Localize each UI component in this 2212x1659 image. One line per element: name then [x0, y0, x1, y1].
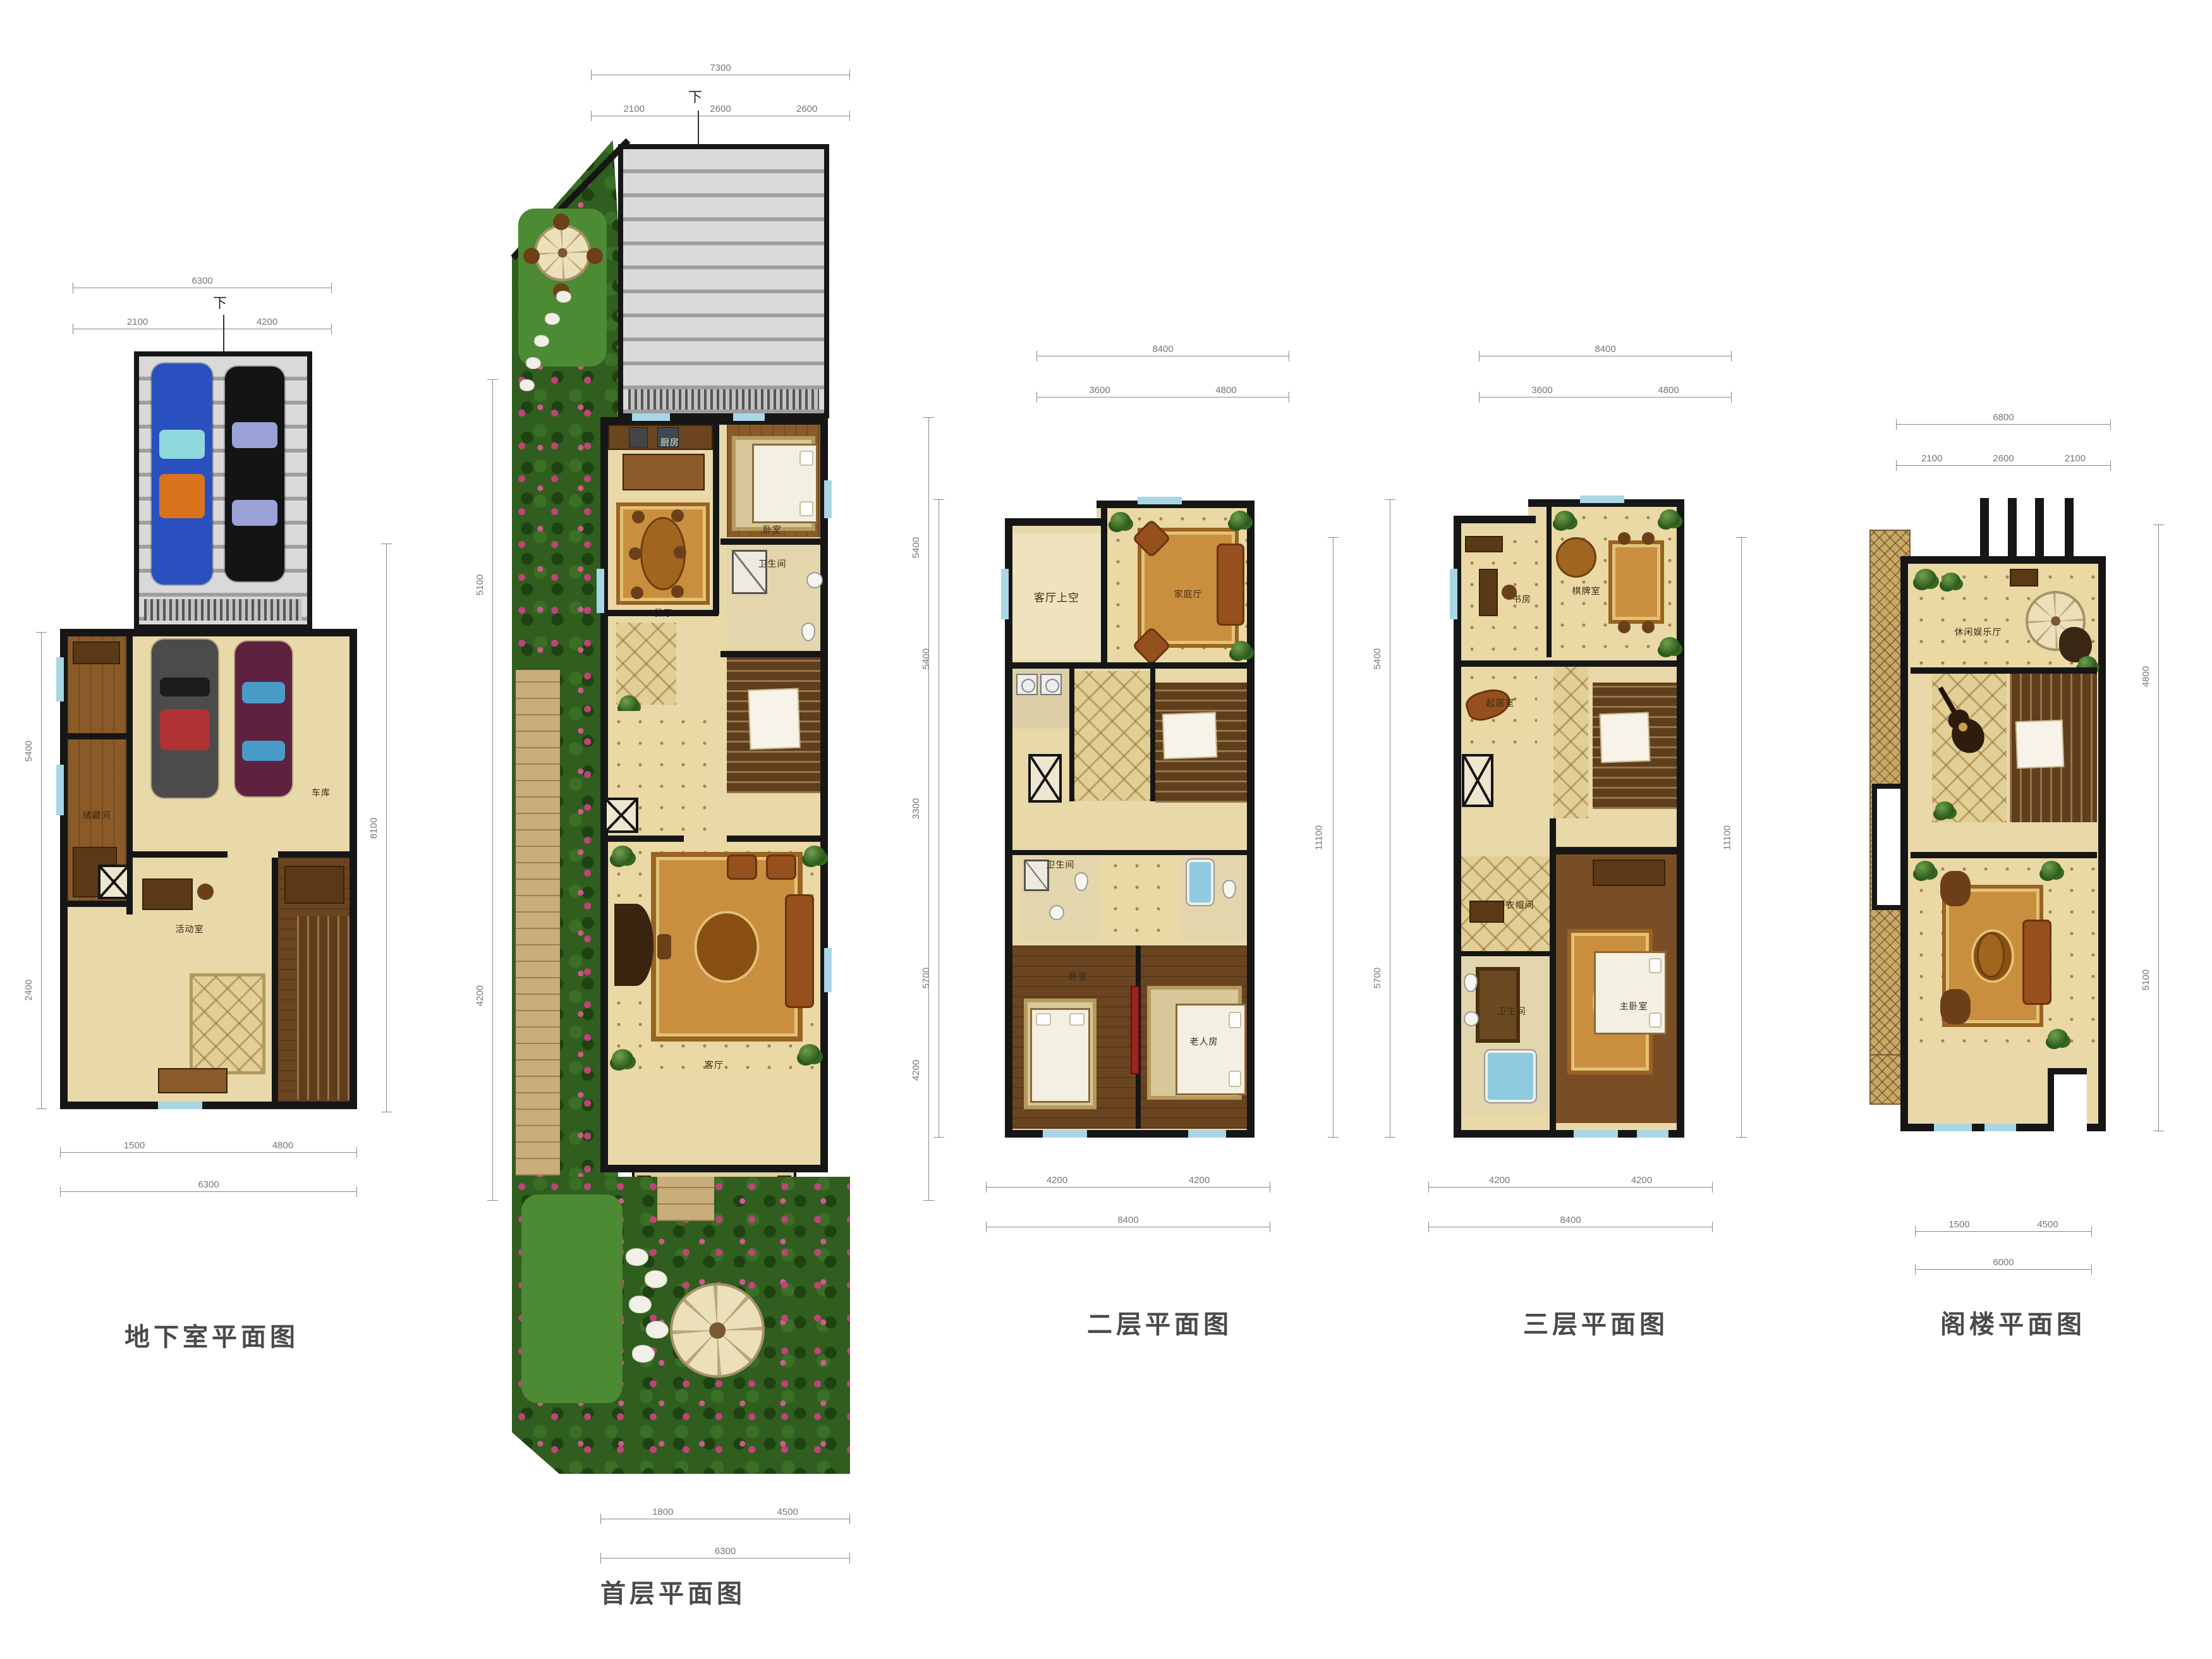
sink-icon: [1049, 905, 1064, 920]
dining-chair: [631, 586, 643, 599]
lobby: [1501, 749, 1548, 815]
storage-nook: [616, 623, 676, 705]
chair: [1618, 621, 1631, 633]
plant-icon: [612, 1049, 633, 1068]
sink-icon: [1464, 1011, 1479, 1026]
game-table-rug: [1608, 540, 1664, 624]
garden-chair: [586, 248, 603, 264]
window: [632, 413, 670, 421]
dining-chair: [629, 547, 641, 560]
elevator-icon: [1462, 754, 1493, 807]
dimension-numbers: 6300: [73, 276, 332, 286]
wardrobe: [1469, 901, 1504, 923]
wall: [1454, 516, 1536, 523]
stair-notch: [2048, 1068, 2087, 1131]
dimension-numbers: 42004200: [986, 1175, 1270, 1186]
partition-wall: [1012, 850, 1247, 855]
window: [1984, 1124, 2016, 1131]
dimension-line: [60, 1191, 357, 1192]
room-label: 休闲娱乐厅: [1955, 626, 2002, 638]
stove-icon: [629, 427, 648, 447]
dimension-line: [73, 329, 332, 329]
stepping-stone: [556, 291, 571, 303]
window: [1574, 1130, 1618, 1138]
stair-landing: [1600, 712, 1651, 763]
hall-runner: [1074, 671, 1150, 801]
plant-icon: [1660, 637, 1680, 655]
partition-wall: [1150, 669, 1155, 801]
plant-icon: [804, 846, 825, 865]
kitchen-island: [623, 454, 705, 490]
dimension-line: [1036, 356, 1289, 356]
stepping-stone: [629, 1296, 652, 1313]
gazebo-table-icon: [534, 224, 591, 281]
dimension-strip: 42004200: [986, 1172, 1270, 1188]
window: [733, 413, 765, 421]
wall: [1005, 518, 1104, 526]
partition-wall: [272, 858, 278, 1104]
stair-landing: [1162, 712, 1217, 760]
plant-icon: [1555, 511, 1575, 528]
garden-chair: [523, 248, 540, 264]
pillow: [1229, 1071, 1241, 1087]
bed-icon: [1030, 1008, 1090, 1103]
room-label: 书房: [1512, 593, 1531, 605]
dimension-strip: 54005700: [927, 499, 943, 1138]
down-arrow-label: 下: [688, 86, 702, 106]
shower-icon: [1024, 860, 1049, 891]
cabinet: [284, 866, 344, 904]
dimension-numbers: 48005100: [2136, 525, 2156, 1131]
dimension-numbers: 210026002600: [591, 104, 850, 114]
window: [824, 480, 832, 518]
room-label: 车库: [312, 786, 331, 799]
dimension-numbers: 51004200: [470, 379, 490, 1201]
cabinet: [2010, 569, 2038, 586]
car-windshield: [232, 422, 277, 448]
dimension-line: [386, 544, 387, 1112]
pillow: [1229, 1012, 1241, 1028]
dimension-strip: 7300: [591, 60, 850, 75]
plant-icon: [1231, 641, 1251, 659]
dimension-numbers: 36004800: [1036, 385, 1289, 396]
dimension-strip: 11100: [1729, 537, 1746, 1138]
window: [824, 948, 832, 992]
room-label: 老人房: [1190, 1035, 1218, 1048]
partition-wall: [133, 851, 228, 858]
dimension-numbers: 54005700: [916, 499, 937, 1138]
dimension-line: [986, 1187, 1270, 1188]
stepping-stone: [646, 1321, 669, 1339]
room-label: 客厅: [705, 1059, 724, 1071]
dimension-line: [492, 379, 493, 1201]
sink-icon: [806, 572, 823, 588]
room-label: 客厅上空: [1034, 589, 1079, 605]
dimension-numbers: 8400: [1036, 344, 1289, 355]
pillow: [1036, 1013, 1051, 1026]
car-rear-window: [242, 741, 285, 761]
plan-title-first: 首层平面图: [600, 1573, 746, 1610]
chimney: [2065, 498, 2074, 558]
room-label: 衣帽间: [1506, 899, 1534, 911]
room-label: 卫生间: [1047, 858, 1075, 871]
room-label: 家庭厅: [1174, 588, 1203, 600]
dimension-strip: 48005100: [2146, 525, 2163, 1131]
window: [1001, 569, 1009, 619]
dimension-numbers: 54005700: [1367, 499, 1388, 1138]
armchair-icon: [1940, 871, 1971, 906]
room-label: 卫生间: [758, 557, 787, 570]
partition-wall: [1911, 852, 2097, 858]
driveway-ramp: [618, 144, 829, 418]
stepping-stone: [626, 1248, 648, 1266]
dimension-strip: 36004800: [1479, 382, 1732, 398]
round-table: [1556, 537, 1596, 578]
piano-bench: [657, 934, 671, 959]
dimension-line: [591, 116, 850, 116]
stepping-stone: [526, 357, 541, 369]
dimension-line: [986, 1227, 1270, 1227]
car-maroon-icon: [235, 641, 292, 796]
dimension-line: [1428, 1227, 1713, 1227]
car-windshield: [159, 430, 205, 459]
living-rug: [651, 852, 803, 1042]
bed-icon: [752, 444, 818, 523]
dining-chair: [671, 509, 684, 522]
parasol-table-icon: [670, 1283, 765, 1378]
dimension-line: [1390, 499, 1390, 1138]
rug-medallion: [694, 911, 759, 983]
dimension-numbers: 7300: [591, 63, 850, 73]
corridor-runner: [1553, 667, 1588, 818]
chimney: [2035, 498, 2044, 558]
washer-icon: [1040, 674, 1062, 695]
partition-wall: [1550, 847, 1684, 854]
desk: [1479, 569, 1498, 616]
sofa-icon: [1217, 544, 1244, 626]
dimension-line: [60, 1152, 357, 1153]
partition-wall: [1101, 501, 1107, 665]
down-arrow-label: 下: [213, 292, 227, 312]
plant-icon: [1942, 573, 1960, 589]
pillow: [1649, 1012, 1662, 1028]
chair: [1642, 621, 1655, 633]
dimension-strip: 8100: [374, 544, 391, 1112]
dimension-numbers: 6000: [1915, 1257, 2092, 1268]
garden-chair: [553, 214, 569, 230]
dimension-strip: 6300: [60, 1177, 357, 1192]
drain-grille: [628, 389, 819, 410]
car-black-icon: [225, 367, 284, 581]
partition-wall: [720, 651, 828, 657]
partition-wall: [720, 538, 828, 545]
dimension-line: [1479, 397, 1732, 398]
dimension-line: [591, 75, 850, 75]
room-label: 厨房: [660, 436, 679, 449]
dimension-strip: 6800: [1896, 410, 2111, 425]
dimension-numbers: 8400: [1479, 344, 1732, 355]
pillow: [1649, 958, 1662, 973]
window: [1934, 1124, 1972, 1131]
chair: [1642, 532, 1655, 545]
car-seats: [160, 709, 210, 750]
plan-title-attic: 阁楼平面图: [1940, 1304, 2086, 1340]
dimension-numbers: 8400: [1428, 1215, 1713, 1225]
coffee-table: [1977, 932, 2005, 978]
chair: [197, 884, 214, 900]
plant-icon: [1915, 861, 1935, 878]
partition-wall: [278, 851, 349, 858]
car-rear-window: [232, 500, 277, 526]
dimension-strip: 15004800: [60, 1138, 357, 1153]
dining-chair: [674, 546, 686, 559]
chimney: [1980, 498, 1989, 558]
dimension-numbers: 6300: [600, 1546, 850, 1557]
dimension-numbers: 15004500: [1915, 1219, 2092, 1230]
dimension-line: [2158, 525, 2159, 1131]
dimension-numbers: 11100: [1306, 537, 1332, 1138]
dimension-line: [600, 1558, 850, 1559]
partition-wall: [1461, 660, 1677, 667]
window: [1043, 1130, 1087, 1138]
dimension-numbers: 6800: [1896, 412, 2111, 423]
window: [158, 1102, 202, 1109]
window: [597, 569, 604, 613]
window: [1580, 495, 1624, 503]
dimension-numbers: 210026002100: [1896, 453, 2111, 464]
wardrobe: [1593, 860, 1665, 886]
plant-icon: [1230, 511, 1250, 528]
dimension-strip: 54005700: [1378, 499, 1394, 1138]
bed-icon: [1594, 951, 1667, 1035]
pillow: [799, 501, 813, 516]
dimension-strip: 6300: [600, 1543, 850, 1559]
dimension-line: [600, 1519, 850, 1519]
stair-landing: [2015, 720, 2065, 769]
stepping-stone: [520, 379, 535, 391]
dining-chair: [632, 511, 645, 523]
dimension-line: [1479, 356, 1732, 356]
desk: [142, 878, 193, 910]
dimension-numbers: 8100: [363, 544, 384, 1112]
partition-wall: [727, 836, 828, 842]
room-label: 卧室: [1069, 970, 1088, 983]
dimension-strip: 15004500: [1915, 1217, 2092, 1232]
dimension-strip: 8400: [1036, 341, 1289, 356]
stepping-stone: [545, 313, 560, 325]
room-label: 卧室: [763, 523, 782, 536]
window: [56, 765, 64, 815]
partition-wall: [608, 610, 719, 616]
room-label: 棋牌室: [1572, 585, 1601, 597]
area-rug: [190, 973, 265, 1074]
dimension-strip: 8400: [1479, 341, 1732, 356]
bed-icon: [1176, 1004, 1246, 1095]
car-seats: [159, 474, 205, 518]
bathtub-icon: [1485, 1050, 1536, 1102]
window: [1450, 569, 1457, 619]
stepping-stone: [632, 1345, 655, 1363]
armchair-icon: [1940, 989, 1971, 1024]
sofa-icon: [2022, 920, 2051, 1005]
armchair-icon: [766, 854, 796, 880]
dimension-strip: 8400: [986, 1212, 1270, 1227]
dimension-line: [1915, 1231, 2092, 1232]
dimension-line: [1915, 1269, 2092, 1270]
stairs: [297, 916, 349, 1100]
corridor: [1105, 855, 1177, 940]
dimension-line: [1741, 537, 1742, 1138]
partition-wall: [1012, 662, 1247, 669]
elevator-icon: [98, 865, 130, 899]
dimension-strip: 210026002100: [1896, 451, 2111, 466]
dimension-line: [939, 499, 939, 1138]
dimension-line: [1333, 537, 1334, 1138]
window: [56, 657, 64, 702]
pillow: [1069, 1013, 1085, 1026]
elevator-icon: [604, 798, 638, 833]
dimension-strip: 8400: [1428, 1212, 1713, 1227]
partition-wall: [608, 836, 684, 842]
partition-wall: [68, 901, 131, 907]
dimension-strip: 51004200: [480, 379, 497, 1201]
lawn: [521, 1194, 623, 1403]
dimension-numbers: 11100: [1715, 537, 1740, 1138]
car-blue-icon: [152, 363, 212, 585]
dimension-numbers: 15004800: [60, 1140, 357, 1151]
dimension-numbers: 21004200: [73, 317, 332, 327]
plant-icon: [1660, 509, 1680, 527]
plant-icon: [1110, 512, 1131, 530]
dimension-strip: 210026002600: [591, 101, 850, 116]
partition-wall: [1911, 667, 2097, 674]
drain-grille: [144, 599, 302, 621]
car-windshield: [160, 678, 210, 696]
room-label: 卫生间: [1498, 1005, 1526, 1018]
room-label: 储藏间: [83, 809, 111, 822]
partition-wall: [1550, 818, 1556, 1138]
floor-plans-sheet: 6300 21004200 下 储藏间: [0, 0, 2212, 1659]
stepping-stone: [645, 1270, 667, 1288]
dimension-numbers: 42004200: [1428, 1175, 1713, 1186]
shower-icon: [732, 550, 767, 594]
dimension-strip: 6300: [73, 273, 332, 288]
sofa-icon: [785, 894, 814, 1008]
plant-icon: [1935, 801, 1954, 818]
tall-cabinet: [1131, 986, 1139, 1074]
piano-icon: [614, 904, 653, 986]
dimension-numbers: 36004800: [1479, 385, 1732, 396]
partition-wall: [68, 733, 131, 739]
car-convertible-icon: [152, 640, 218, 798]
room-label: 起居室: [1486, 696, 1515, 709]
dimension-line: [73, 288, 332, 288]
dimension-line: [1896, 424, 2111, 425]
window: [1637, 1130, 1668, 1138]
dimension-strip: 6000: [1915, 1255, 2092, 1270]
bathtub-icon: [1187, 860, 1213, 905]
window: [1188, 1130, 1226, 1138]
garden-steps-path: [516, 670, 560, 1176]
pillow: [799, 451, 813, 466]
armchair-icon: [727, 854, 757, 880]
dimension-strip: 54002400: [29, 632, 46, 1109]
bookshelf: [1465, 536, 1503, 552]
dimension-strip: 42004200: [1428, 1172, 1713, 1188]
car-windshield: [242, 682, 285, 703]
elevator-icon: [1028, 754, 1062, 803]
dimension-numbers: 18004500: [600, 1507, 850, 1517]
plan-title-basement: 地下室平面图: [125, 1316, 299, 1353]
partition-wall: [1461, 951, 1553, 956]
dining-chair: [671, 585, 684, 598]
room-label: 主卧室: [1620, 1000, 1648, 1012]
plant-icon: [799, 1044, 820, 1063]
stepping-stone: [534, 335, 549, 347]
plant-icon: [619, 695, 638, 713]
dimension-line: [1036, 397, 1289, 398]
chair: [1618, 532, 1631, 545]
chimney: [2008, 498, 2017, 558]
dimension-strip: 11100: [1321, 537, 1337, 1138]
plant-icon: [612, 846, 633, 865]
room-label: 活动室: [176, 923, 204, 935]
dimension-strip: 21004200: [73, 314, 332, 329]
dimension-numbers: 54002400: [18, 632, 39, 1109]
dimension-numbers: 8400: [986, 1215, 1270, 1225]
window: [1138, 497, 1182, 504]
dimension-strip: 36004800: [1036, 382, 1289, 398]
plant-icon: [2048, 1029, 2068, 1047]
plan-title-third: 三层平面图: [1523, 1304, 1668, 1340]
plant-icon: [1915, 569, 1936, 588]
dimension-strip: 18004500: [600, 1504, 850, 1519]
dimension-line: [41, 632, 42, 1109]
dimension-line: [1428, 1187, 1713, 1188]
plan-title-second: 二层平面图: [1087, 1304, 1232, 1340]
dimension-numbers: 6300: [60, 1179, 357, 1190]
washer-icon: [1016, 674, 1038, 695]
partition-wall: [1069, 669, 1074, 801]
dimension-line: [1896, 465, 2111, 466]
plant-icon: [2041, 861, 2062, 878]
garden-path: [657, 1177, 714, 1221]
stair-landing: [748, 688, 800, 750]
storage-shelf: [73, 641, 120, 664]
side-table: [158, 1068, 228, 1093]
partition-wall: [713, 425, 719, 614]
